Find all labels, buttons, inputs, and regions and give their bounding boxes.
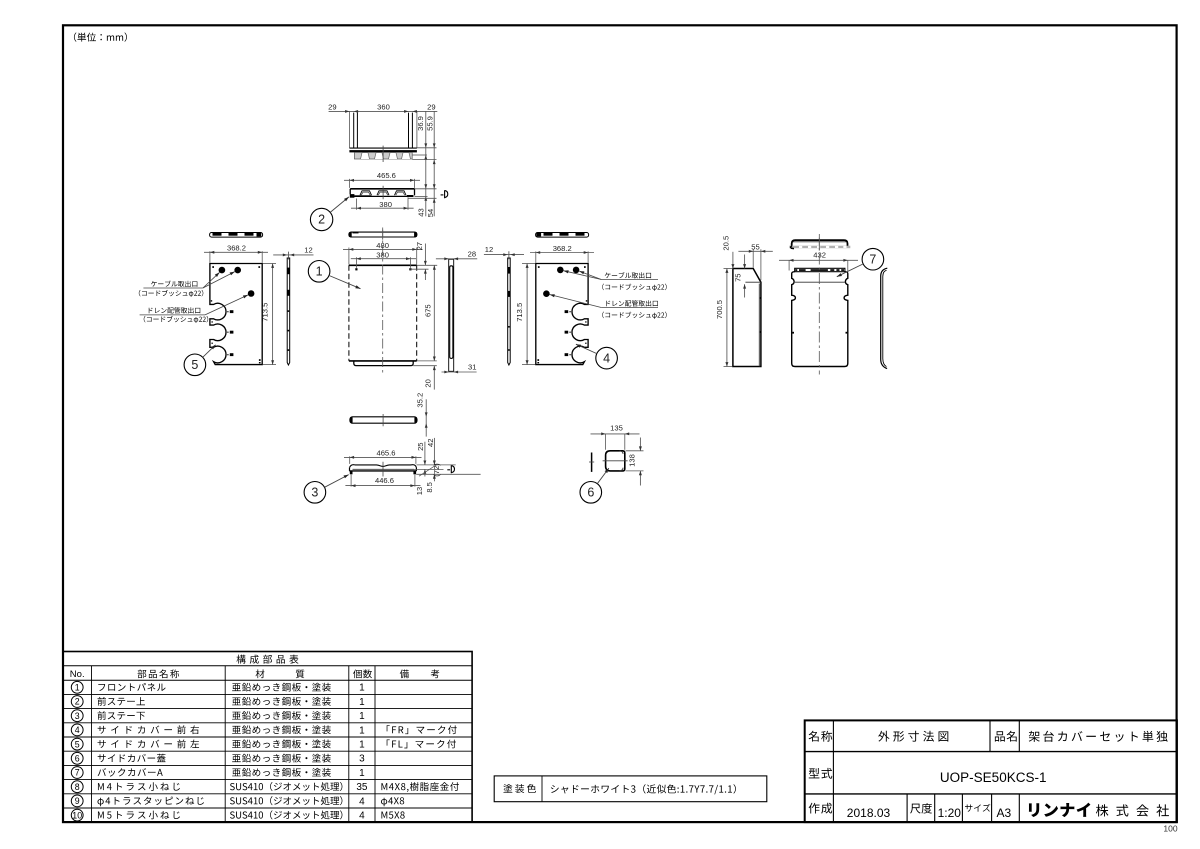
svg-text:25: 25 bbox=[416, 442, 425, 450]
svg-text:A3: A3 bbox=[997, 806, 1012, 820]
svg-text:3: 3 bbox=[75, 711, 80, 721]
svg-text:675: 675 bbox=[423, 304, 432, 317]
svg-text:135: 135 bbox=[610, 424, 623, 433]
svg-text:1: 1 bbox=[359, 725, 365, 736]
svg-text:3: 3 bbox=[359, 754, 365, 765]
svg-text:20.5: 20.5 bbox=[721, 236, 730, 251]
svg-text:480: 480 bbox=[376, 241, 389, 250]
svg-text:35: 35 bbox=[356, 782, 368, 793]
svg-text:29: 29 bbox=[427, 102, 435, 111]
svg-text:360: 360 bbox=[377, 102, 390, 111]
svg-text:8.5: 8.5 bbox=[425, 482, 434, 493]
svg-text:29: 29 bbox=[328, 102, 336, 111]
svg-text:1: 1 bbox=[359, 683, 365, 694]
svg-text:2: 2 bbox=[75, 697, 80, 707]
svg-text:4: 4 bbox=[359, 796, 365, 807]
svg-text:UOP-SE50KCS-1: UOP-SE50KCS-1 bbox=[940, 770, 1047, 785]
svg-text:5: 5 bbox=[191, 358, 198, 372]
svg-text:2018.03: 2018.03 bbox=[847, 806, 891, 820]
svg-text:28: 28 bbox=[468, 250, 476, 259]
svg-text:43: 43 bbox=[416, 208, 425, 216]
svg-text:12: 12 bbox=[304, 246, 312, 255]
svg-text:713.5: 713.5 bbox=[260, 303, 269, 322]
svg-text:465.6: 465.6 bbox=[376, 448, 395, 457]
svg-text:54: 54 bbox=[426, 209, 435, 217]
svg-text:1: 1 bbox=[359, 697, 365, 708]
svg-text:No.: No. bbox=[70, 669, 85, 680]
svg-text:4: 4 bbox=[359, 811, 365, 822]
svg-text:1: 1 bbox=[359, 711, 365, 722]
svg-text:380: 380 bbox=[379, 200, 392, 209]
svg-text:1: 1 bbox=[316, 265, 323, 279]
svg-text:13: 13 bbox=[415, 487, 424, 495]
svg-text:713.5: 713.5 bbox=[515, 303, 524, 322]
svg-text:2: 2 bbox=[318, 213, 325, 227]
svg-text:3: 3 bbox=[311, 486, 318, 500]
svg-text:4: 4 bbox=[75, 725, 80, 735]
svg-text:6: 6 bbox=[75, 754, 80, 764]
svg-text:31: 31 bbox=[468, 363, 476, 372]
svg-text:1: 1 bbox=[359, 740, 365, 751]
svg-text:7: 7 bbox=[869, 252, 876, 266]
svg-text:138: 138 bbox=[628, 454, 637, 467]
svg-text:4: 4 bbox=[603, 351, 610, 365]
svg-text:368.2: 368.2 bbox=[553, 244, 572, 253]
svg-text:1: 1 bbox=[75, 683, 80, 693]
svg-text:35.2: 35.2 bbox=[415, 393, 424, 408]
svg-text:1:20: 1:20 bbox=[938, 806, 962, 820]
svg-text:42: 42 bbox=[426, 439, 435, 447]
svg-text:465.6: 465.6 bbox=[377, 171, 396, 180]
svg-text:5: 5 bbox=[75, 739, 80, 749]
svg-text:446.6: 446.6 bbox=[375, 476, 394, 485]
svg-text:368.2: 368.2 bbox=[227, 244, 246, 253]
svg-text:1: 1 bbox=[359, 768, 365, 779]
svg-text:10: 10 bbox=[72, 810, 82, 820]
svg-text:380: 380 bbox=[376, 250, 389, 259]
svg-text:20: 20 bbox=[423, 379, 432, 387]
svg-text:(72): (72) bbox=[432, 463, 441, 477]
svg-text:7: 7 bbox=[75, 768, 80, 778]
svg-text:9: 9 bbox=[75, 796, 80, 806]
svg-text:75: 75 bbox=[734, 273, 743, 281]
svg-text:36.9: 36.9 bbox=[416, 116, 425, 131]
svg-text:6: 6 bbox=[587, 486, 594, 500]
svg-text:8: 8 bbox=[75, 782, 80, 792]
svg-text:700.5: 700.5 bbox=[715, 300, 724, 319]
svg-text:55: 55 bbox=[751, 242, 759, 251]
svg-text:55.9: 55.9 bbox=[425, 116, 434, 131]
svg-text:27: 27 bbox=[415, 242, 424, 250]
svg-text:100: 100 bbox=[1163, 824, 1177, 834]
svg-text:12: 12 bbox=[485, 245, 493, 254]
